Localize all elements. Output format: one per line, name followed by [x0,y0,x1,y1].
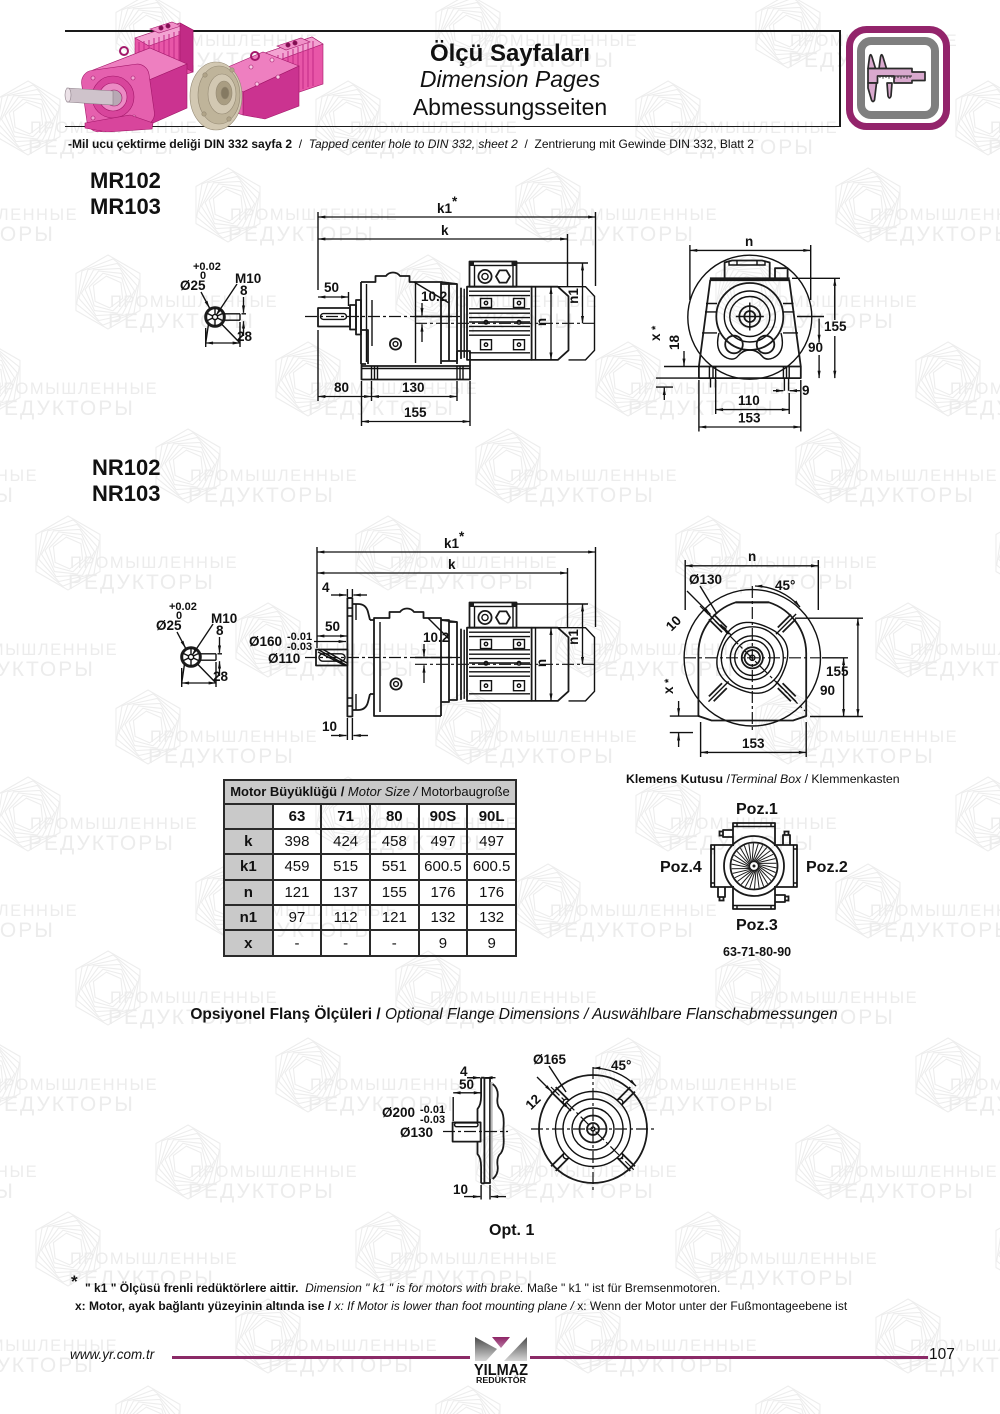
svg-text:0: 0 [200,270,206,282]
svg-text:*: * [452,194,458,209]
svg-text:10: 10 [453,1182,468,1197]
svg-text:80: 80 [334,380,349,395]
svg-text:90: 90 [808,340,823,355]
svg-text:REDÜKTÖR: REDÜKTÖR [476,1376,526,1384]
svg-text:Ø160: Ø160 [249,634,282,649]
svg-text:12: 12 [523,1091,544,1112]
svg-text:10.2: 10.2 [421,289,447,304]
svg-text:n: n [534,318,549,326]
svg-text:153: 153 [742,736,765,751]
svg-text:155: 155 [826,664,849,679]
svg-text:10: 10 [322,719,337,734]
svg-text:x: x [648,333,663,341]
svg-text:9: 9 [802,383,810,398]
svg-text:Ø200: Ø200 [382,1105,415,1120]
svg-text:*: * [663,678,675,683]
svg-text:90: 90 [820,683,835,698]
svg-text:10.2: 10.2 [423,630,449,645]
svg-text:45°: 45° [611,1058,631,1073]
svg-text:155: 155 [404,405,427,420]
svg-text:k1: k1 [444,536,460,551]
svg-text:0: 0 [176,610,182,622]
svg-text:n: n [534,659,549,667]
svg-text:*: * [459,530,465,544]
svg-text:18: 18 [667,334,682,350]
svg-text:Poz.4: Poz.4 [660,859,702,876]
svg-text:10: 10 [663,613,684,634]
svg-text:Poz.1: Poz.1 [736,801,778,818]
svg-text:50: 50 [459,1077,474,1092]
svg-text:+0.02: +0.02 [169,601,197,613]
svg-text:28: 28 [237,329,253,344]
svg-text:28: 28 [213,669,229,684]
svg-text:n: n [745,234,753,249]
svg-text:x: x [661,686,676,694]
svg-text:130: 130 [402,380,425,395]
svg-text:M10: M10 [211,611,237,626]
svg-text:50: 50 [324,280,339,295]
svg-text:+0.02: +0.02 [193,261,221,273]
svg-text:Ø110: Ø110 [268,651,300,666]
svg-text:50: 50 [325,619,340,634]
svg-text:Ø165: Ø165 [533,1052,567,1067]
svg-text:k: k [448,557,456,572]
svg-text:Poz.2: Poz.2 [806,859,848,876]
svg-text:Ø130: Ø130 [400,1125,433,1140]
svg-text:k: k [441,223,449,238]
svg-text:4: 4 [322,580,330,595]
svg-text:110: 110 [738,393,760,408]
svg-text:n1: n1 [566,629,581,645]
svg-text:63-71-80-90: 63-71-80-90 [723,945,791,959]
svg-text:Poz.3: Poz.3 [736,917,778,934]
svg-text:*: * [650,325,662,330]
svg-text:k1: k1 [437,201,453,216]
svg-text:153: 153 [738,411,761,426]
svg-text:n: n [748,550,756,564]
svg-text:155: 155 [824,319,847,334]
svg-text:Ø130: Ø130 [689,572,722,587]
svg-text:M10: M10 [235,271,261,286]
svg-text:n1: n1 [566,288,581,304]
